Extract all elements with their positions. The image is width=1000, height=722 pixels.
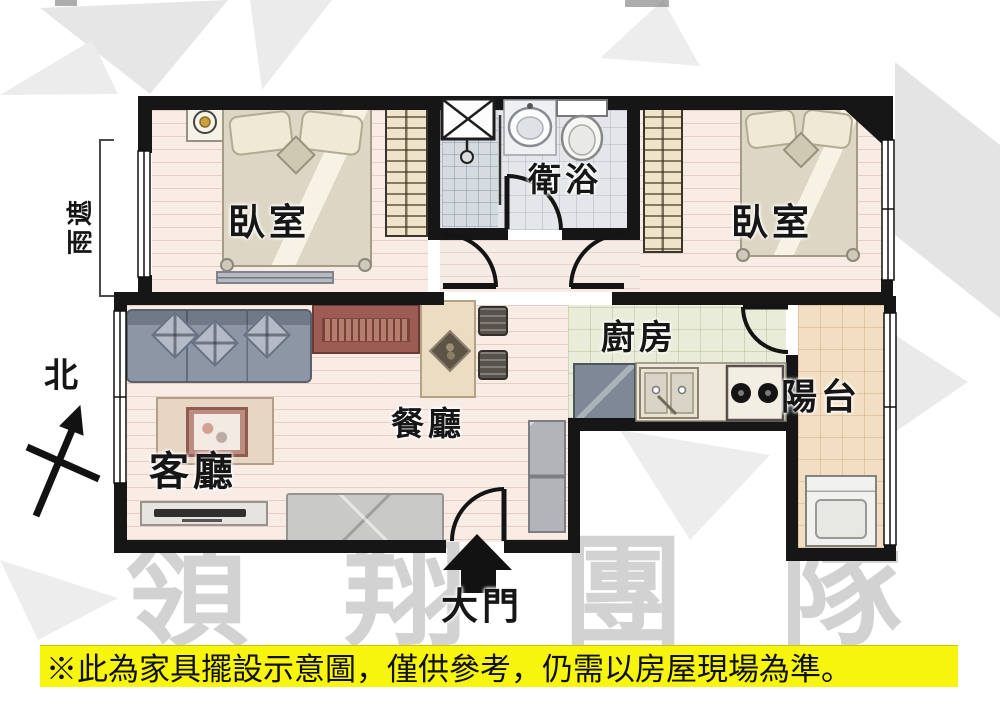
sofa-pillow <box>243 311 291 359</box>
hallway-floor <box>440 240 640 292</box>
north-arrow <box>27 406 99 516</box>
bedpost <box>358 258 372 272</box>
agency-watermark-text: 領翔團隊 <box>126 532 986 654</box>
bathroom-door <box>507 176 561 230</box>
shoe-cabinet <box>528 420 566 533</box>
wardrobe-right <box>643 103 683 253</box>
bathroom-floor <box>440 96 627 230</box>
bedroom-left-label: 臥室 <box>228 204 310 241</box>
living-rug <box>156 397 274 465</box>
rain-shelter-outline <box>100 140 114 296</box>
gas-stove <box>727 366 783 420</box>
bedpost <box>736 248 750 262</box>
window <box>114 311 126 483</box>
window <box>138 151 150 277</box>
north-label: 北 <box>44 359 78 393</box>
sofa-pillow <box>191 319 239 367</box>
windows <box>114 140 896 545</box>
living-label: 客廳 <box>149 452 237 492</box>
dining-chair <box>478 306 508 336</box>
tv-console <box>140 501 268 526</box>
table-lamp <box>194 111 216 133</box>
shower-floor <box>442 99 498 227</box>
walls <box>114 96 896 561</box>
kitchen-counter <box>636 363 786 421</box>
disclaimer-banner: ※此為家具擺設示意圖，僅供參考，仍需以房屋現場為準。 <box>40 645 958 687</box>
dining-chair <box>478 350 508 380</box>
kitchen-sink <box>640 368 698 418</box>
bed-left <box>222 107 372 267</box>
window <box>882 140 894 280</box>
nightstand <box>186 102 224 142</box>
balcony-door <box>743 307 788 352</box>
bedpost <box>220 258 234 272</box>
bed-bench <box>216 271 334 284</box>
bed-right <box>740 105 858 257</box>
sofa-pillow <box>151 311 199 359</box>
toilet <box>557 100 607 160</box>
floor-plan-image: 領翔團隊 <box>0 0 1000 722</box>
bedroom-right-floor <box>640 110 886 292</box>
living-dining-floor <box>127 305 568 542</box>
refrigerator <box>573 363 636 420</box>
dining-table <box>420 300 476 398</box>
bedroom-right-door <box>571 234 624 287</box>
bedpost <box>846 248 860 262</box>
bedroom-right-label: 臥室 <box>731 204 813 241</box>
balcony-label: 陽台 <box>781 379 861 415</box>
sofa <box>126 309 312 383</box>
dining-label: 餐廳 <box>391 407 465 440</box>
balcony-floor <box>798 305 886 548</box>
wardrobe-left <box>385 103 428 237</box>
rain-shelter-label: 雨遮 <box>67 176 93 276</box>
doors <box>443 176 788 541</box>
bedroom-left-floor <box>152 110 428 292</box>
disclaimer-text: ※此為家具擺設示意圖，僅供參考，仍需以房屋現場為準。 <box>40 644 852 689</box>
shower-box <box>442 99 494 163</box>
bedroom-left-door <box>443 234 496 287</box>
kitchen-floor <box>568 305 786 418</box>
window <box>884 313 896 545</box>
bathroom-sink <box>504 100 556 155</box>
sideboard <box>312 304 420 354</box>
bathroom-label: 衛浴 <box>528 163 602 196</box>
kitchen-label: 廚房 <box>601 321 677 355</box>
